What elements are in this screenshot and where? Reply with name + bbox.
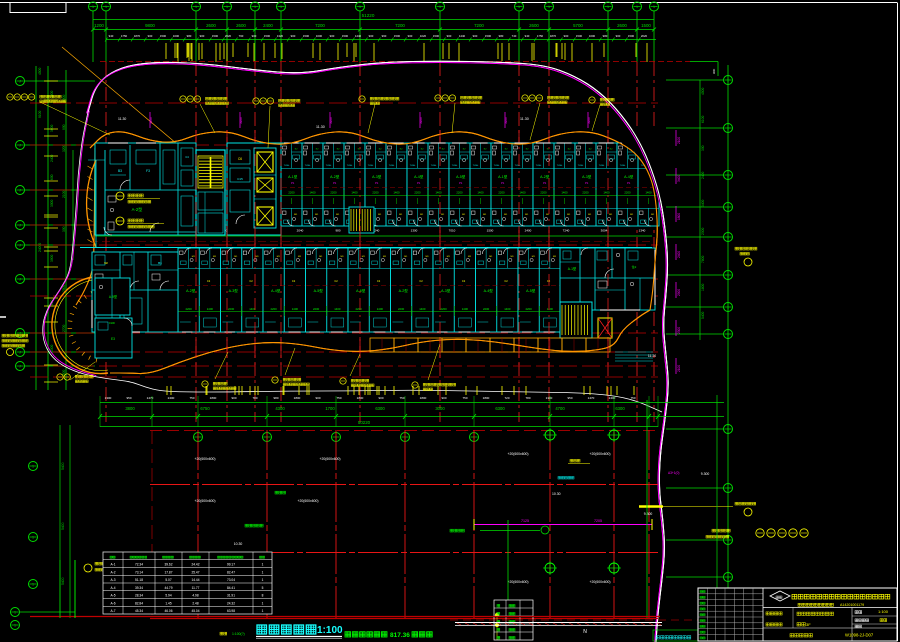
svg-text:2200: 2200	[372, 191, 379, 195]
svg-text:TLMk: TLMk	[494, 165, 500, 167]
svg-text:46.06: 46.06	[165, 609, 173, 613]
svg-text:1: 1	[727, 575, 729, 579]
svg-text:1400: 1400	[377, 307, 384, 311]
svg-text:+20(600x600): +20(600x600)	[194, 457, 215, 461]
svg-text:2200: 2200	[582, 191, 589, 195]
svg-text:73.04: 73.04	[227, 578, 235, 582]
svg-text:1:100(?): 1:100(?)	[232, 632, 245, 636]
svg-text:2200: 2200	[441, 307, 448, 311]
svg-text:4.98: 4.98	[192, 594, 198, 598]
svg-text:2200: 2200	[288, 191, 295, 195]
svg-text:2200: 2200	[398, 307, 405, 311]
svg-text:TLMk: TLMk	[620, 165, 626, 167]
svg-text:750: 750	[462, 396, 467, 400]
svg-text:1320: 1320	[277, 34, 284, 38]
svg-text:39.62: 39.62	[165, 563, 173, 567]
svg-text:1300: 1300	[105, 396, 112, 400]
svg-text:1800: 1800	[420, 396, 427, 400]
svg-text:F3: F3	[146, 169, 150, 173]
svg-text:1: 1	[727, 427, 729, 431]
svg-text:A-2: A-2	[111, 570, 116, 574]
svg-text:1: 1	[262, 601, 264, 605]
svg-text:6300: 6300	[495, 406, 505, 411]
svg-text:1: 1	[92, 5, 94, 9]
svg-text:1500: 1500	[487, 229, 494, 233]
svg-text:750: 750	[336, 396, 341, 400]
svg-text:940: 940	[525, 34, 530, 38]
svg-text:1750: 1750	[121, 34, 128, 38]
svg-text:2200: 2200	[540, 191, 547, 195]
svg-text:900: 900	[330, 34, 335, 38]
svg-text:900: 900	[369, 34, 374, 38]
svg-text:1900: 1900	[109, 321, 115, 325]
svg-text:2600: 2600	[206, 23, 216, 28]
svg-text:B3: B3	[118, 169, 122, 173]
svg-text:2200: 2200	[356, 307, 363, 311]
svg-text:31.91: 31.91	[227, 594, 235, 598]
svg-text:TLMk: TLMk	[326, 165, 332, 167]
svg-text:2200: 2200	[330, 191, 337, 195]
svg-text:2400: 2400	[701, 171, 705, 179]
svg-text:A-3型: A-3型	[441, 288, 451, 293]
svg-text:2200: 2200	[313, 307, 320, 311]
svg-text:3900: 3900	[329, 117, 333, 124]
svg-text:900: 900	[447, 34, 452, 38]
svg-text:51.18: 51.18	[135, 578, 143, 582]
svg-text:900: 900	[291, 34, 296, 38]
svg-text:1800: 1800	[677, 213, 681, 220]
svg-text:1: 1	[32, 582, 34, 586]
svg-text:C2: C2	[334, 279, 338, 283]
svg-text:9.300: 9.300	[701, 472, 710, 476]
svg-text:3600: 3600	[50, 124, 54, 132]
svg-text:1400: 1400	[504, 307, 511, 311]
svg-text:3900: 3900	[419, 117, 423, 124]
svg-text:1300: 1300	[546, 396, 553, 400]
svg-text:1600: 1600	[173, 34, 180, 38]
svg-text:住2: 住2	[632, 264, 637, 269]
svg-text:7125: 7125	[521, 519, 529, 523]
svg-text:1500: 1500	[303, 34, 310, 38]
svg-text:1400: 1400	[477, 191, 484, 195]
svg-text:900: 900	[252, 34, 257, 38]
svg-text:1600: 1600	[316, 34, 323, 38]
svg-text:73.14: 73.14	[135, 570, 143, 574]
svg-text:1400: 1400	[435, 191, 442, 195]
svg-text:45.34: 45.34	[135, 609, 143, 613]
svg-text:+20(600x600): +20(600x600)	[589, 580, 610, 584]
svg-text:2200: 2200	[228, 307, 235, 311]
svg-text:25.47: 25.47	[192, 570, 200, 574]
svg-text:24.42: 24.42	[192, 563, 200, 567]
svg-text:1400: 1400	[351, 191, 358, 195]
svg-text:1: 1	[359, 5, 361, 9]
svg-text:11.30: 11.30	[316, 125, 325, 129]
svg-text:A-2型: A-2型	[399, 288, 409, 293]
svg-text:1400: 1400	[393, 191, 400, 195]
svg-text:5400: 5400	[61, 462, 65, 470]
svg-text:A-2型: A-2型	[186, 288, 196, 293]
svg-text:W1098-2J-D07: W1098-2J-D07	[845, 633, 874, 638]
svg-text:1700: 1700	[325, 406, 335, 411]
svg-text:1: 1	[727, 486, 729, 490]
svg-text:4500: 4500	[38, 67, 42, 75]
svg-text:TLMk: TLMk	[452, 165, 458, 167]
svg-text:7200: 7200	[315, 23, 325, 28]
svg-text:1340: 1340	[639, 229, 646, 233]
svg-text:1400: 1400	[561, 191, 568, 195]
svg-text:980: 980	[499, 34, 504, 38]
svg-text:A-1: A-1	[111, 563, 116, 567]
svg-text:3900: 3900	[587, 117, 591, 124]
svg-text:A3+1(0): A3+1(0)	[668, 471, 679, 475]
svg-text:45.04: 45.04	[192, 609, 200, 613]
svg-text:1500: 1500	[576, 34, 583, 38]
svg-text:C2: C2	[462, 279, 466, 283]
svg-text:1400: 1400	[519, 191, 526, 195]
svg-text:1: 1	[195, 5, 197, 9]
svg-text:2200: 2200	[483, 307, 490, 311]
svg-text:P1: P1	[375, 181, 379, 185]
svg-text:A-4型: A-4型	[271, 288, 281, 293]
svg-text:1440: 1440	[459, 34, 466, 38]
svg-text:3900: 3900	[239, 117, 243, 124]
svg-text:P1: P1	[627, 181, 631, 185]
svg-text:TLMk: TLMk	[515, 165, 521, 167]
svg-text:2400: 2400	[168, 396, 175, 400]
svg-text:+20(600x600): +20(600x600)	[507, 580, 528, 584]
svg-text:TLMk: TLMk	[410, 165, 416, 167]
svg-text:1800: 1800	[294, 396, 301, 400]
svg-text:17.87: 17.87	[165, 570, 173, 574]
svg-text:82.84: 82.84	[135, 601, 143, 605]
svg-text:A-4型: A-4型	[624, 174, 634, 179]
svg-text:1: 1	[254, 5, 256, 9]
svg-text:1: 1	[727, 205, 729, 209]
svg-text:2200: 2200	[186, 307, 193, 311]
svg-text:900: 900	[378, 396, 383, 400]
svg-text:8: 8	[262, 594, 264, 598]
svg-text:C4: C4	[185, 155, 189, 159]
svg-text:750: 750	[630, 396, 635, 400]
svg-text:TLMk: TLMk	[389, 165, 395, 167]
svg-text:C15: C15	[237, 177, 243, 181]
svg-text:1440: 1440	[355, 34, 362, 38]
svg-text:1500: 1500	[485, 34, 492, 38]
svg-text:4700: 4700	[555, 406, 565, 411]
svg-text:1400: 1400	[292, 307, 299, 311]
svg-text:+20(600x600): +20(600x600)	[589, 452, 610, 456]
svg-text:3900: 3900	[504, 117, 508, 124]
svg-text:2200: 2200	[624, 191, 631, 195]
svg-text:99.17: 99.17	[227, 563, 235, 567]
svg-text:C2: C2	[419, 279, 423, 283]
svg-text:1400: 1400	[334, 307, 341, 311]
svg-text:900: 900	[616, 34, 621, 38]
svg-text:1: 1	[727, 538, 729, 542]
svg-text:2100: 2100	[677, 365, 681, 372]
svg-text:A-3型: A-3型	[229, 288, 239, 293]
svg-text:A-3: A-3	[111, 578, 116, 582]
svg-text:600: 600	[50, 174, 54, 180]
svg-text:11.77: 11.77	[192, 586, 200, 590]
svg-text:1400: 1400	[462, 307, 469, 311]
svg-text:1: 1	[727, 235, 729, 239]
svg-text:2600: 2600	[617, 23, 627, 28]
svg-text:740: 740	[512, 34, 517, 38]
svg-text:A-7: A-7	[111, 609, 116, 613]
svg-text:1400: 1400	[645, 191, 652, 195]
svg-text:C2: C2	[207, 279, 211, 283]
svg-text:950: 950	[126, 396, 131, 400]
svg-text:M2: M2	[104, 261, 108, 265]
svg-text:1500: 1500	[433, 34, 440, 38]
svg-text:P1: P1	[417, 181, 421, 185]
svg-text:9.300: 9.300	[644, 512, 653, 516]
svg-text:2100: 2100	[677, 137, 681, 144]
svg-text:1870: 1870	[550, 34, 557, 38]
svg-text:750: 750	[399, 396, 404, 400]
svg-text:2200: 2200	[526, 307, 533, 311]
svg-text:1: 1	[727, 78, 729, 82]
svg-text:A-5型: A-5型	[314, 288, 324, 293]
svg-text:300: 300	[701, 145, 705, 151]
svg-text:TLMk: TLMk	[305, 165, 311, 167]
svg-text:3F: 3F	[806, 622, 811, 627]
svg-text:1: 1	[518, 5, 520, 9]
svg-text:11.20: 11.20	[648, 354, 656, 358]
svg-text:2100: 2100	[62, 190, 66, 198]
svg-text:900: 900	[408, 34, 413, 38]
svg-text:P1: P1	[333, 181, 337, 185]
svg-text:5.94: 5.94	[165, 594, 171, 598]
svg-text:2400: 2400	[50, 154, 54, 162]
svg-text:2300: 2300	[701, 227, 705, 235]
svg-text:1500: 1500	[160, 34, 167, 38]
svg-text:3800: 3800	[125, 406, 135, 411]
svg-text:817.36: 817.36	[390, 632, 410, 639]
svg-text:P1: P1	[291, 181, 295, 185]
svg-text:TLMk: TLMk	[536, 165, 542, 167]
svg-text:1400: 1400	[309, 191, 316, 195]
svg-text:1: 1	[653, 5, 655, 9]
svg-text:1: 1	[32, 464, 34, 468]
svg-text:6750: 6750	[200, 406, 210, 411]
svg-text:A-2型: A-2型	[540, 174, 550, 179]
svg-text:A-2型: A-2型	[132, 206, 143, 212]
svg-text:A-4型: A-4型	[414, 174, 424, 179]
svg-text:6300: 6300	[615, 406, 625, 411]
svg-text:1470: 1470	[588, 396, 595, 400]
svg-text:1: 1	[548, 5, 550, 9]
svg-text:A-6型: A-6型	[356, 288, 366, 293]
svg-text:+20(600x600): +20(600x600)	[319, 457, 340, 461]
svg-text:1: 1	[439, 5, 441, 9]
svg-text:51220: 51220	[362, 13, 375, 18]
svg-text:2600: 2600	[529, 23, 539, 28]
svg-text:11.30: 11.30	[520, 117, 529, 121]
svg-text:TLMk: TLMk	[599, 165, 605, 167]
svg-text:A14201001179: A14201001179	[840, 603, 864, 607]
svg-text:1750: 1750	[537, 34, 544, 38]
svg-text:3400: 3400	[701, 199, 705, 207]
svg-text:5700: 5700	[573, 23, 583, 28]
svg-text:1470: 1470	[147, 396, 154, 400]
svg-text:1: 1	[727, 126, 729, 130]
svg-text:1: 1	[105, 5, 107, 9]
svg-text:63.98: 63.98	[227, 609, 235, 613]
svg-text:3900: 3900	[50, 254, 54, 262]
svg-text:1: 1	[262, 609, 264, 613]
svg-text:2040: 2040	[297, 229, 304, 233]
svg-text:A-3型: A-3型	[582, 174, 592, 179]
svg-text:980: 980	[273, 396, 278, 400]
svg-text:A-5: A-5	[111, 594, 116, 598]
svg-text:C2: C2	[292, 279, 296, 283]
svg-text:3000: 3000	[50, 199, 54, 207]
svg-text:900: 900	[564, 34, 569, 38]
svg-text:1:100: 1:100	[878, 609, 889, 614]
svg-text:C2: C2	[377, 279, 381, 283]
svg-text:P1: P1	[543, 181, 547, 185]
svg-text:E3: E3	[111, 337, 115, 341]
svg-text:7240: 7240	[563, 229, 570, 233]
svg-text:2200: 2200	[498, 191, 505, 195]
svg-text:1: 1	[262, 570, 264, 574]
svg-text:10.30: 10.30	[234, 542, 243, 546]
svg-text:C6: C6	[238, 157, 242, 161]
svg-text:1500: 1500	[342, 34, 349, 38]
svg-text:B1: B1	[158, 261, 162, 265]
svg-text:24.32: 24.32	[227, 601, 235, 605]
svg-text:1870: 1870	[134, 34, 141, 38]
svg-text:A-9型: A-9型	[109, 294, 118, 299]
svg-text:1: 1	[727, 332, 729, 336]
svg-text:50220: 50220	[358, 420, 371, 425]
svg-text:14.44: 14.44	[192, 578, 200, 582]
svg-text:1500: 1500	[212, 34, 219, 38]
svg-text:2400: 2400	[677, 251, 681, 258]
svg-text:1: 1	[727, 273, 729, 277]
svg-text:1800: 1800	[210, 396, 217, 400]
svg-text:9100: 9100	[38, 110, 42, 118]
svg-text:+20(600x600): +20(600x600)	[507, 452, 528, 456]
svg-text:1.45: 1.45	[165, 601, 171, 605]
svg-text:11.30: 11.30	[118, 117, 126, 121]
svg-text:TLMk: TLMk	[284, 165, 290, 167]
svg-text:1: 1	[14, 623, 16, 627]
svg-text:900: 900	[231, 396, 236, 400]
svg-text:TLMk: TLMk	[473, 165, 479, 167]
svg-text:A-1型: A-1型	[568, 266, 577, 271]
svg-text:72.34: 72.34	[135, 563, 143, 567]
svg-text:7205: 7205	[594, 519, 602, 523]
svg-text:3004: 3004	[601, 229, 608, 233]
svg-text:900: 900	[473, 34, 478, 38]
svg-text:2900: 2900	[677, 289, 681, 296]
svg-text:7200: 7200	[474, 23, 484, 28]
svg-text:28.34: 28.34	[135, 594, 143, 598]
svg-text:3400: 3400	[677, 175, 681, 182]
svg-text:TLMk: TLMk	[557, 165, 563, 167]
svg-text:780: 780	[525, 396, 530, 400]
svg-text:A-1型: A-1型	[498, 174, 508, 179]
svg-text:7200: 7200	[395, 23, 405, 28]
svg-text:3900: 3900	[149, 117, 153, 124]
svg-text:760: 760	[239, 34, 244, 38]
svg-text:1400: 1400	[207, 307, 214, 311]
svg-text:1: 1	[262, 563, 264, 567]
svg-text:2200: 2200	[414, 191, 421, 195]
svg-text:780: 780	[252, 396, 257, 400]
svg-text:7010: 7010	[449, 229, 456, 233]
svg-text:1500: 1500	[641, 23, 651, 28]
svg-text:2.48: 2.48	[192, 601, 198, 605]
svg-text:1020: 1020	[420, 34, 427, 38]
svg-text:84.41: 84.41	[227, 586, 235, 590]
svg-text:6100: 6100	[701, 115, 705, 123]
svg-text:+20(600x600): +20(600x600)	[297, 499, 318, 503]
svg-text:960: 960	[382, 34, 387, 38]
svg-text:1: 1	[727, 305, 729, 309]
svg-text:1600: 1600	[589, 34, 596, 38]
svg-text:2800: 2800	[50, 90, 54, 98]
svg-text:39.34: 39.34	[135, 586, 143, 590]
svg-text:N: N	[583, 629, 587, 635]
svg-text:1500: 1500	[394, 34, 401, 38]
svg-text:1: 1	[727, 173, 729, 177]
svg-text:5: 5	[262, 586, 264, 590]
svg-text:A-6: A-6	[111, 601, 116, 605]
svg-text:1: 1	[607, 5, 609, 9]
svg-text:3000: 3000	[435, 406, 445, 411]
svg-text:5.07: 5.07	[165, 578, 171, 582]
svg-text:2400: 2400	[263, 23, 273, 28]
svg-text:1200: 1200	[94, 23, 104, 28]
svg-text:5400: 5400	[701, 311, 705, 319]
svg-text:TLMk: TLMk	[578, 165, 584, 167]
svg-text:2200: 2200	[271, 307, 278, 311]
svg-text:980: 980	[335, 229, 340, 233]
svg-text:900: 900	[712, 69, 716, 74]
svg-text:2400: 2400	[609, 396, 616, 400]
svg-text:900: 900	[441, 396, 446, 400]
svg-text:TLMk: TLMk	[347, 165, 353, 167]
svg-text:7800: 7800	[701, 255, 705, 263]
svg-text:900: 900	[315, 396, 320, 400]
svg-text:A-4型: A-4型	[484, 288, 494, 293]
svg-text:3200: 3200	[62, 144, 66, 152]
svg-text:980: 980	[187, 34, 192, 38]
svg-text:900: 900	[62, 124, 66, 130]
svg-text:2020: 2020	[641, 34, 648, 38]
svg-text:A-1型: A-1型	[288, 174, 298, 179]
svg-text:2300: 2300	[677, 327, 681, 334]
svg-text:1300: 1300	[411, 229, 418, 233]
svg-text:980: 980	[603, 34, 608, 38]
svg-text:1400: 1400	[419, 307, 426, 311]
svg-text:1: 1	[280, 5, 282, 9]
svg-text:900: 900	[200, 34, 205, 38]
svg-text:6300: 6300	[375, 406, 385, 411]
svg-text:720: 720	[504, 396, 509, 400]
svg-text:9800: 9800	[145, 23, 155, 28]
svg-text:P1: P1	[501, 181, 505, 185]
svg-text:2020: 2020	[225, 34, 232, 38]
svg-text:2600: 2600	[236, 23, 246, 28]
svg-text:1800: 1800	[483, 396, 490, 400]
svg-text:P1: P1	[459, 181, 463, 185]
